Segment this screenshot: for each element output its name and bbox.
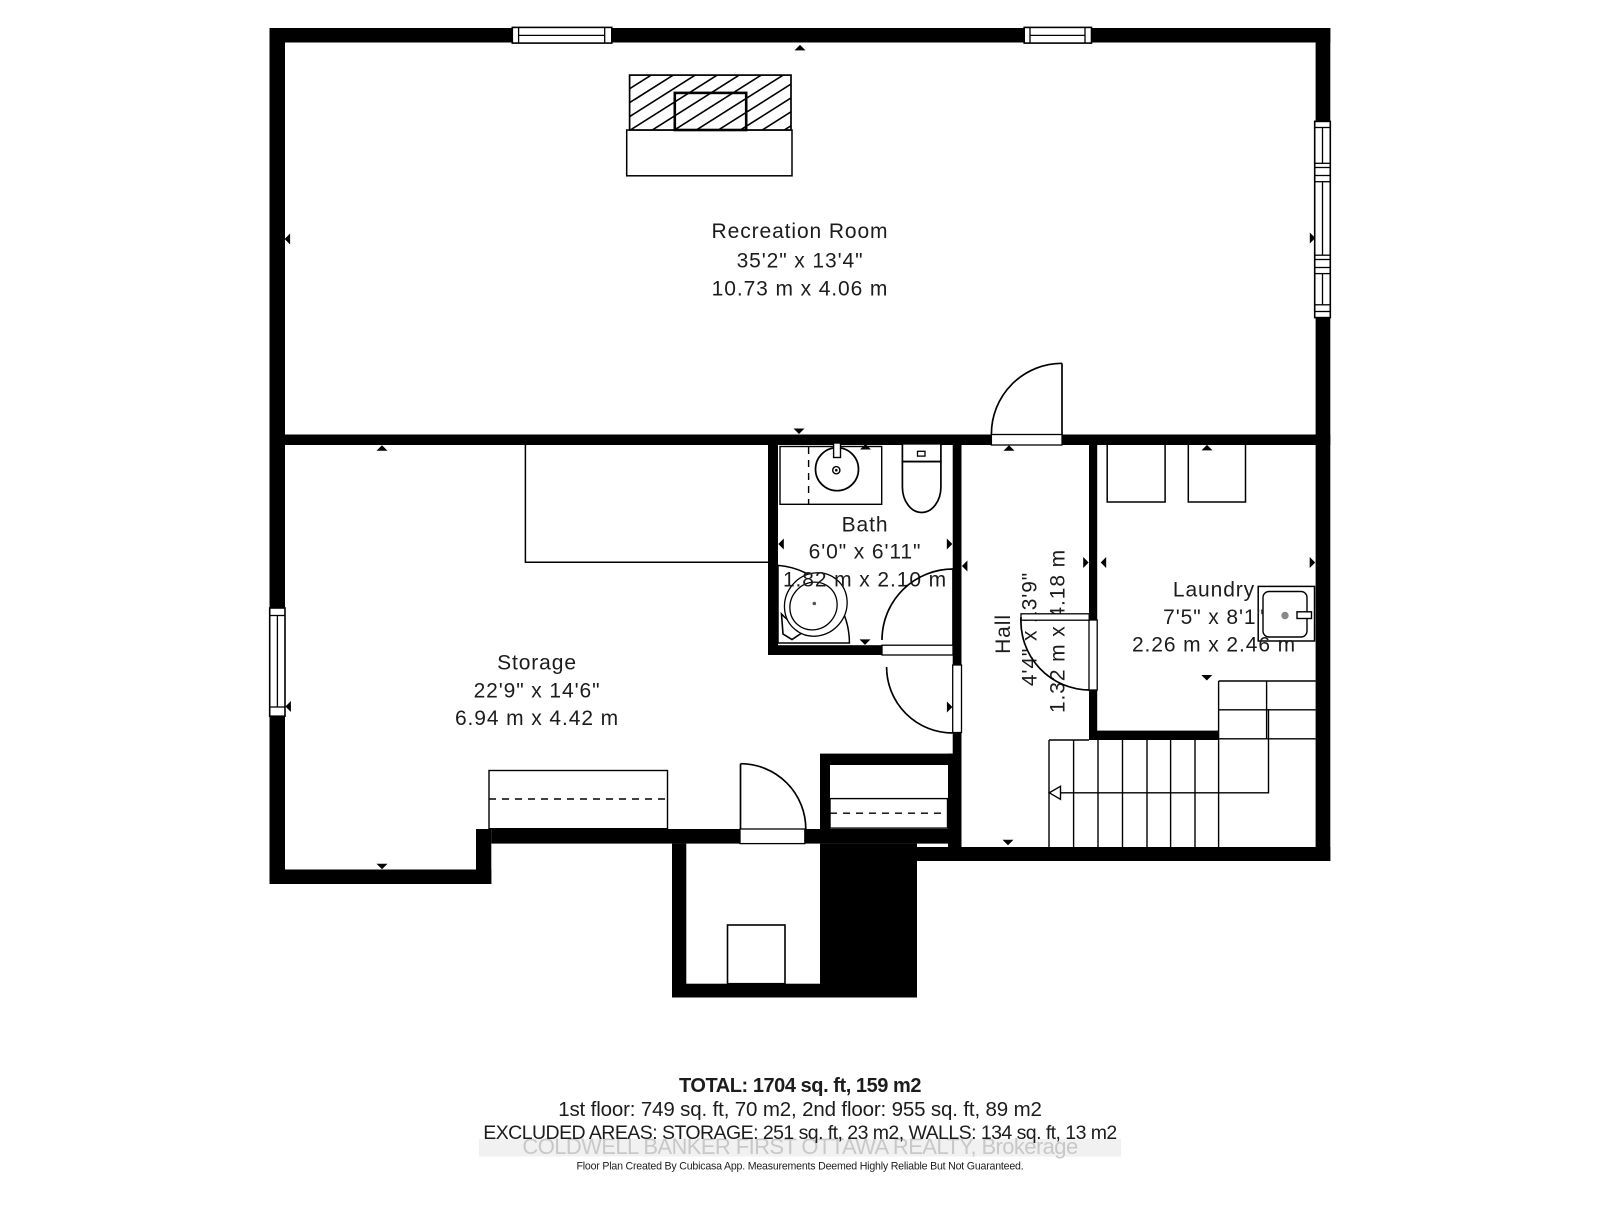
svg-text:1.82 m x 2.10 m: 1.82 m x 2.10 m: [783, 569, 947, 592]
svg-text:7'5" x 8'1": 7'5" x 8'1": [1163, 606, 1265, 629]
svg-text:Recreation Room: Recreation Room: [712, 220, 889, 243]
svg-text:Hall: Hall: [992, 614, 1015, 654]
svg-text:TOTAL: 1704 sq. ft, 159 m2: TOTAL: 1704 sq. ft, 159 m2: [679, 1075, 921, 1097]
svg-text:Laundry: Laundry: [1173, 579, 1255, 602]
svg-text:2.26 m x 2.46 m: 2.26 m x 2.46 m: [1132, 634, 1296, 657]
svg-text:Floor Plan Created By Cubicasa: Floor Plan Created By Cubicasa App. Meas…: [577, 1161, 1024, 1173]
svg-text:Storage: Storage: [497, 652, 577, 675]
svg-text:1.32 m x 4.18 m: 1.32 m x 4.18 m: [1047, 549, 1070, 713]
svg-text:35'2" x 13'4": 35'2" x 13'4": [737, 250, 864, 273]
svg-text:Bath: Bath: [842, 514, 889, 537]
svg-text:1st floor: 749 sq. ft, 70 m2,: 1st floor: 749 sq. ft, 70 m2, 2nd floor:…: [558, 1098, 1042, 1121]
svg-text:22'9" x 14'6": 22'9" x 14'6": [474, 680, 601, 703]
svg-text:6.94 m x 4.42 m: 6.94 m x 4.42 m: [455, 707, 619, 730]
svg-text:10.73 m x 4.06 m: 10.73 m x 4.06 m: [712, 278, 889, 301]
svg-text:6'0" x 6'11": 6'0" x 6'11": [809, 541, 922, 564]
svg-text:EXCLUDED AREAS: STORAGE: 251 s: EXCLUDED AREAS: STORAGE: 251 sq. ft, 23 …: [483, 1122, 1116, 1144]
